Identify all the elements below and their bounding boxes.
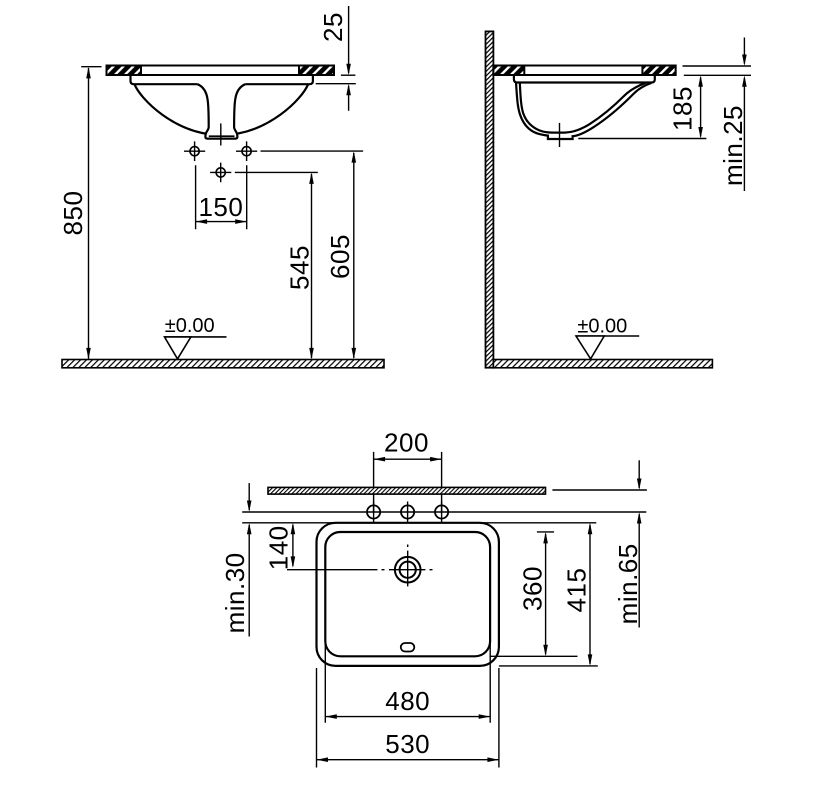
- svg-text:200: 200: [384, 428, 429, 458]
- svg-text:480: 480: [385, 686, 430, 716]
- svg-text:360: 360: [517, 566, 547, 611]
- svg-text:185: 185: [668, 86, 698, 131]
- svg-text:25: 25: [318, 12, 348, 42]
- svg-text:min.25: min.25: [718, 105, 748, 186]
- svg-text:545: 545: [285, 245, 315, 290]
- svg-text:±0.00: ±0.00: [165, 315, 215, 337]
- svg-text:140: 140: [263, 525, 293, 570]
- svg-text:850: 850: [58, 191, 88, 236]
- svg-text:min.65: min.65: [613, 543, 643, 624]
- svg-text:min.30: min.30: [220, 552, 250, 633]
- svg-text:605: 605: [325, 234, 355, 279]
- svg-text:150: 150: [198, 192, 243, 222]
- svg-text:415: 415: [561, 568, 591, 613]
- svg-text:±0.00: ±0.00: [577, 315, 627, 337]
- svg-text:530: 530: [385, 729, 430, 759]
